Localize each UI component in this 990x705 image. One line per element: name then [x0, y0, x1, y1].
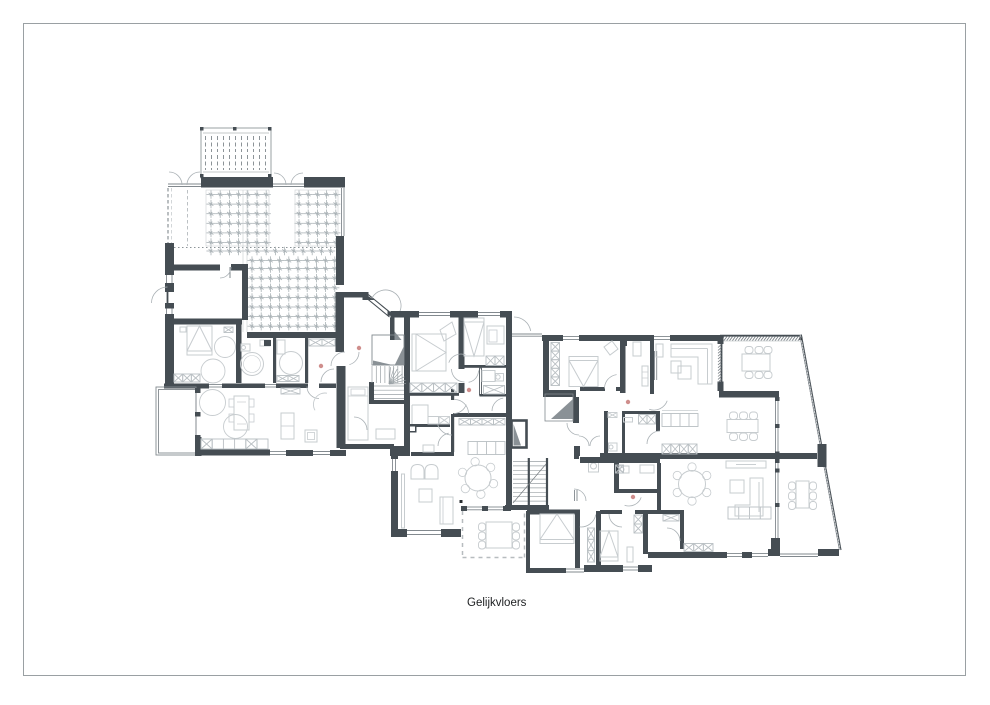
svg-text:Gelijkvloers: Gelijkvloers [467, 597, 527, 609]
